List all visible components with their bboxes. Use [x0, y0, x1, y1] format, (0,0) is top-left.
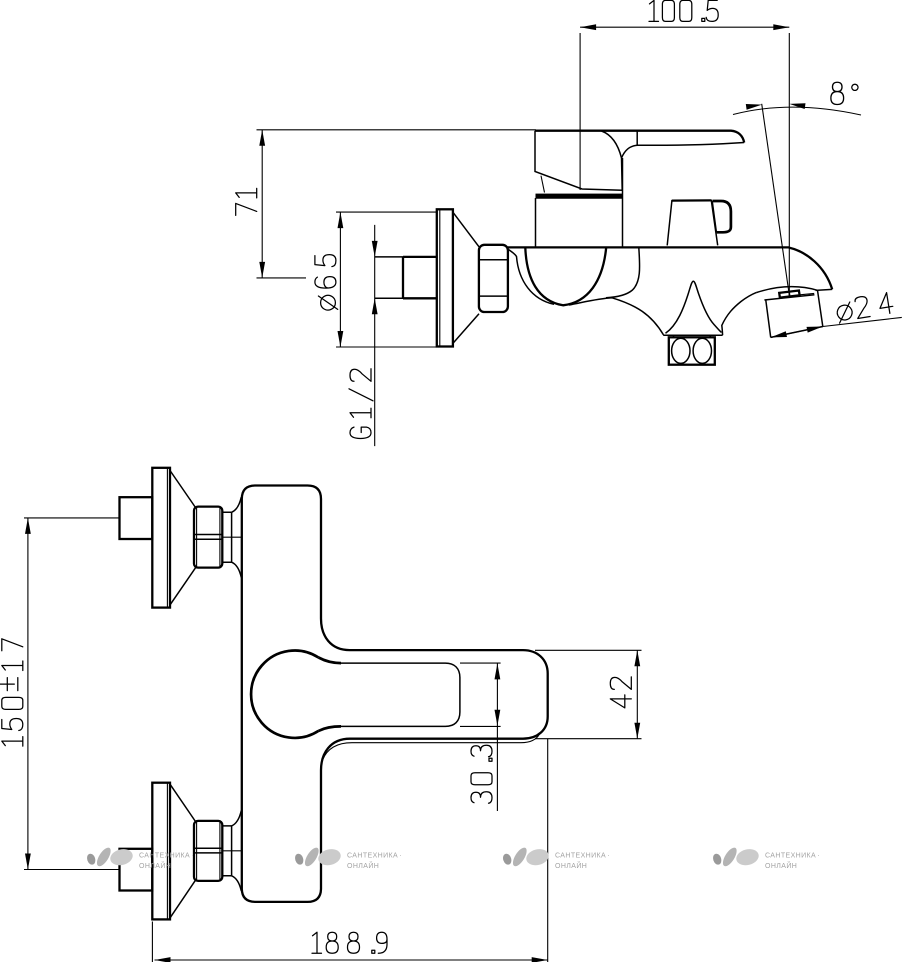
svg-text:ОНЛАЙН: ОНЛАЙН — [347, 861, 379, 870]
svg-text:ОНЛАЙН: ОНЛАЙН — [555, 861, 587, 870]
svg-text:САНТЕХНИКА ·: САНТЕХНИКА · — [347, 853, 402, 860]
svg-text:ОНЛАЙН: ОНЛАЙН — [139, 861, 171, 870]
svg-text:САНТЕХНИКА ·: САНТЕХНИКА · — [555, 853, 610, 860]
svg-text:САНТЕХНИКА ·: САНТЕХНИКА · — [765, 853, 820, 860]
svg-text:САНТЕХНИКА ·: САНТЕХНИКА · — [139, 853, 194, 860]
svg-text:ОНЛАЙН: ОНЛАЙН — [765, 861, 797, 870]
